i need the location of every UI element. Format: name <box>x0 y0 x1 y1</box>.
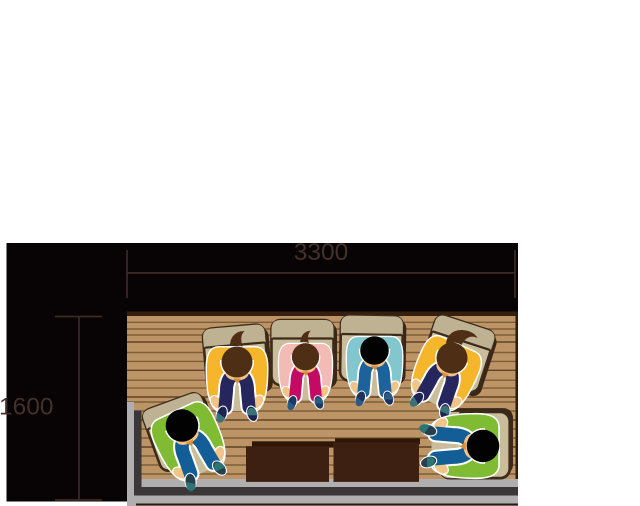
svg-text:1600: 1600 <box>0 394 54 421</box>
svg-text:3300: 3300 <box>294 239 349 266</box>
